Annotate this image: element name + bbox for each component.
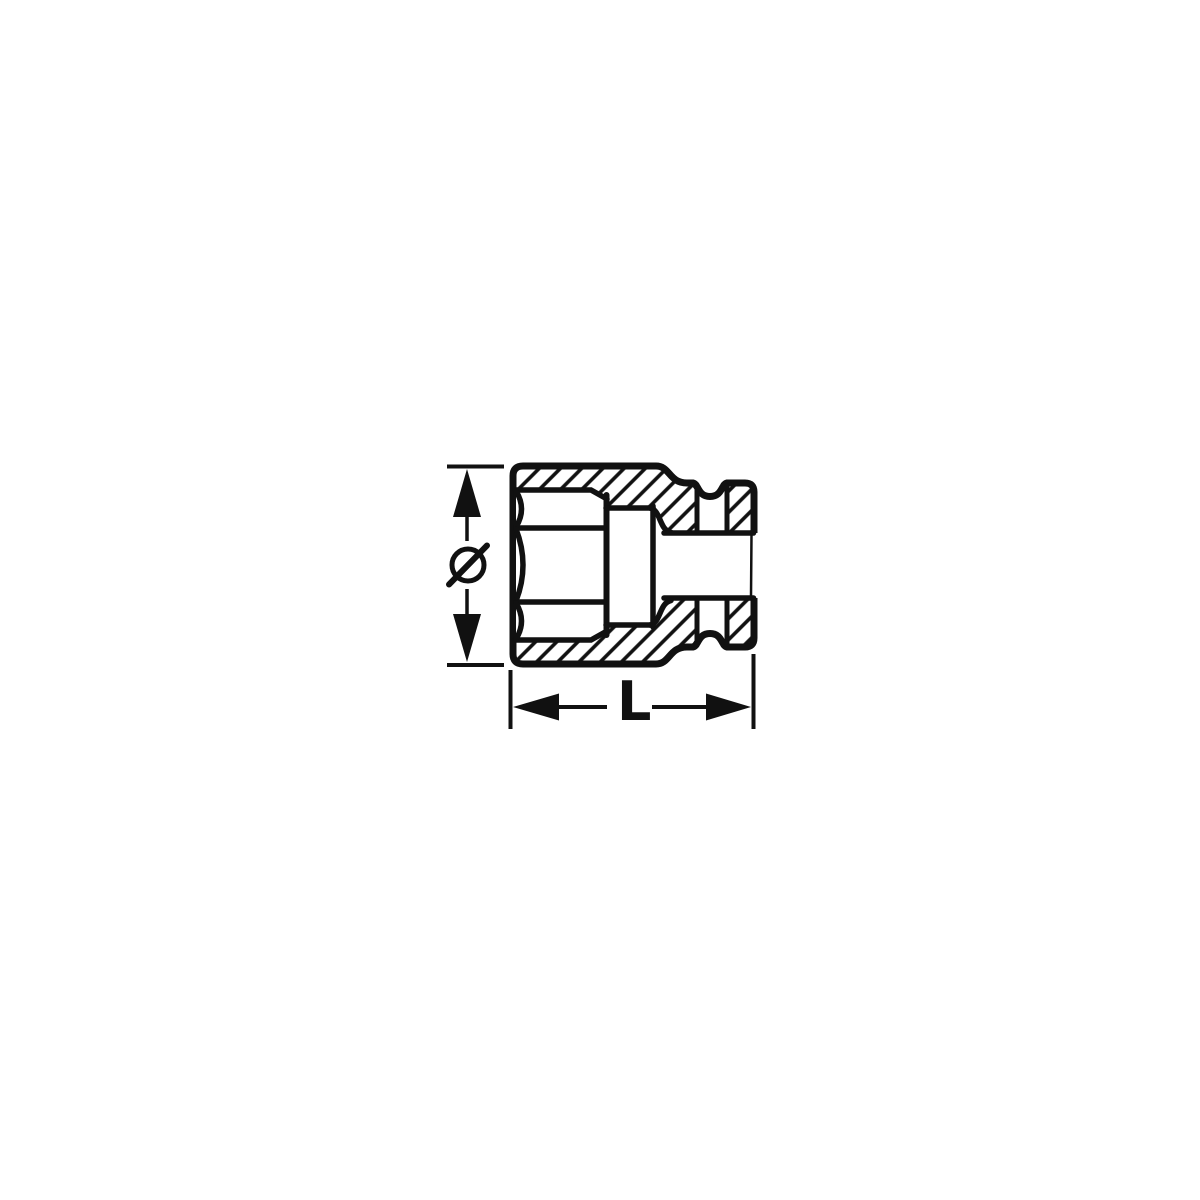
socket-section-drawing: L <box>0 0 1200 1200</box>
diameter-dimension <box>447 467 504 666</box>
diameter-arrow-up-icon <box>453 469 481 517</box>
square-drive-void <box>666 533 762 598</box>
diameter-arrow-down-icon <box>453 614 481 662</box>
length-arrow-left-icon <box>513 694 559 721</box>
step-bore-void <box>607 508 653 625</box>
hex-recess-void <box>516 490 607 640</box>
diameter-symbol-icon <box>449 546 487 585</box>
length-arrow-right-icon <box>706 694 751 721</box>
drive-hole-mouth-edge <box>751 535 752 596</box>
length-label: L <box>617 670 651 733</box>
socket-body <box>513 466 762 664</box>
square-drive-hole <box>666 533 762 598</box>
hex-recess <box>516 490 607 640</box>
drawing-canvas: L <box>0 0 1200 1200</box>
